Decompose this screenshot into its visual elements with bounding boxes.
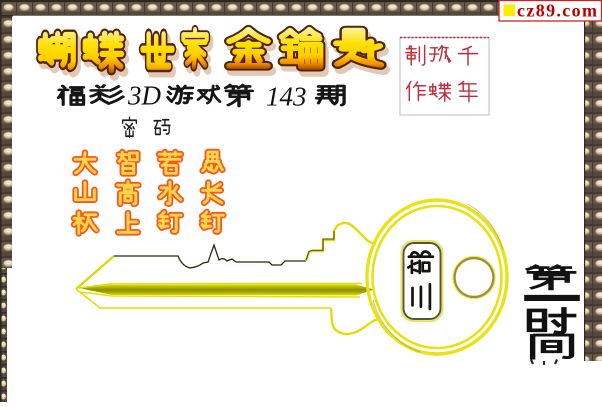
svg-text:3D: 3D [127,81,162,111]
svg-text:cz89.com: cz89.com [517,1,597,21]
svg-text:143: 143 [266,82,307,112]
